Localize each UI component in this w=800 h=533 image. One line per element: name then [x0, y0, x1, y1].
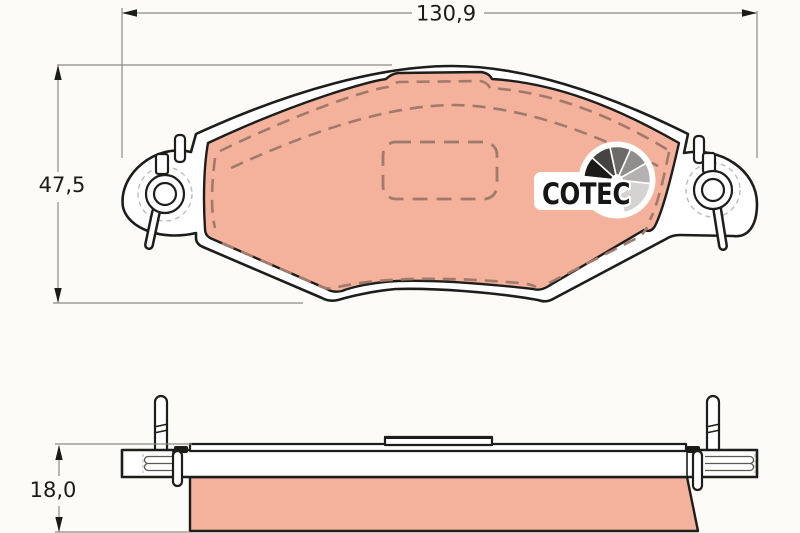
drawing-canvas: COTEC [0, 0, 800, 533]
brake-pad-diagram: COTEC [0, 0, 800, 533]
friction-material-side [190, 477, 698, 531]
right-clip-wire [693, 451, 702, 490]
left-ear-notch [156, 154, 168, 174]
left-clip-tab [175, 135, 185, 162]
right-ring-hole [702, 179, 724, 201]
backing-plate-side [122, 450, 757, 477]
thickness-dim-label: 18,0 [30, 478, 77, 502]
left-ring-hole [154, 183, 176, 205]
width-dim-label: 130,9 [416, 2, 476, 26]
left-clip-wire [173, 451, 182, 486]
height-dim-label: 47,5 [39, 173, 86, 197]
logo-wordmark: COTEC [542, 177, 630, 211]
